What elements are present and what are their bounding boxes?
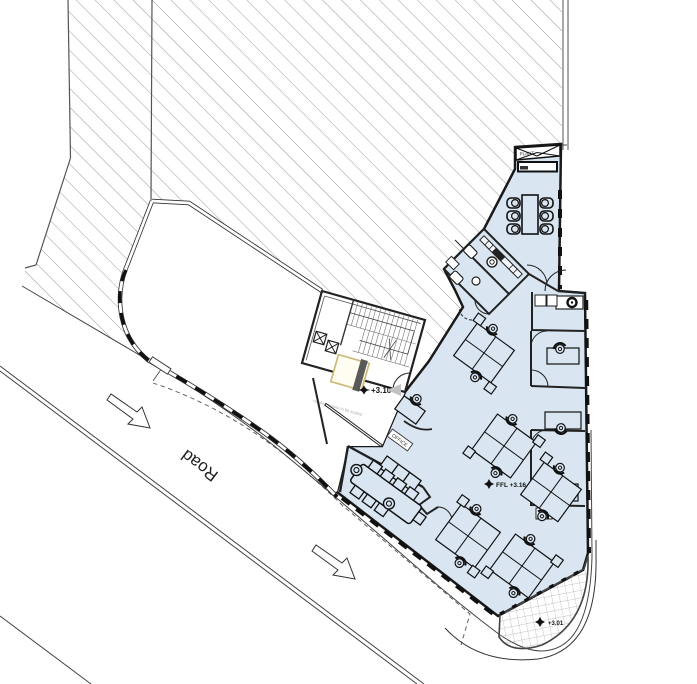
svg-text:+3.01: +3.01 — [548, 621, 564, 627]
svg-text:FFL +3.16: FFL +3.16 — [496, 482, 526, 489]
svg-text:PLANT: PLANT — [519, 150, 534, 156]
